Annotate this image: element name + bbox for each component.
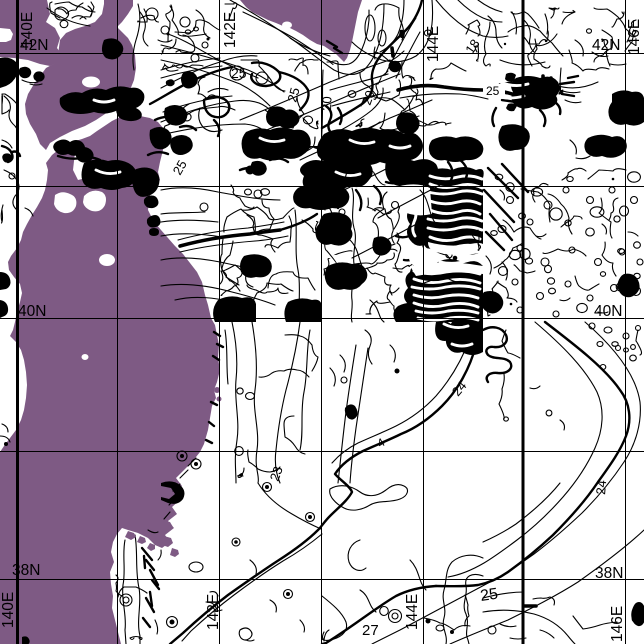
svg-text:42N: 42N: [592, 37, 620, 54]
svg-text:40N: 40N: [18, 303, 46, 320]
svg-text:40N: 40N: [594, 303, 622, 320]
svg-text:20: 20: [319, 96, 334, 111]
svg-text:142E: 142E: [222, 12, 239, 48]
svg-text:142E: 142E: [205, 594, 222, 630]
svg-text:25: 25: [486, 84, 500, 98]
svg-text:146E: 146E: [609, 606, 626, 642]
svg-text:38N: 38N: [12, 562, 40, 579]
svg-text:144E: 144E: [425, 26, 442, 62]
svg-text:38N: 38N: [595, 565, 623, 582]
svg-text:140E: 140E: [19, 12, 36, 48]
svg-text:24: 24: [593, 480, 609, 496]
svg-text:144E: 144E: [404, 594, 421, 630]
svg-text:146E: 146E: [626, 19, 643, 55]
svg-text:140E: 140E: [0, 592, 17, 628]
svg-text:27: 27: [362, 622, 379, 639]
svg-text:5: 5: [433, 141, 440, 155]
svg-text:25: 25: [231, 65, 247, 81]
svg-text:25: 25: [479, 586, 499, 605]
